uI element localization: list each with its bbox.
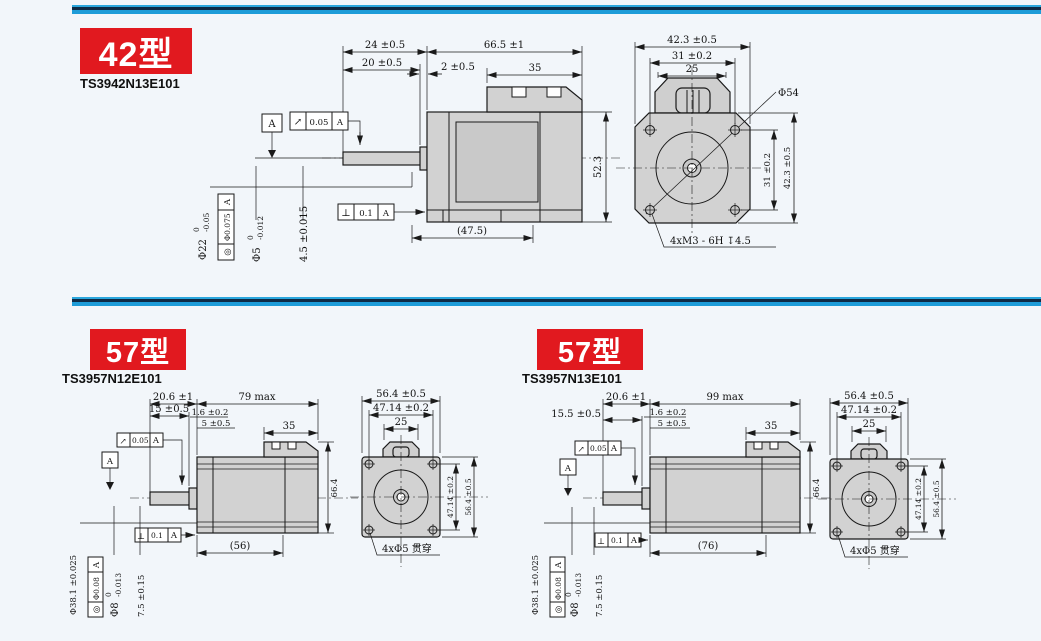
dim-pilot-length: 2 ±0.5 xyxy=(441,62,475,73)
dim-shaft-length: 15.5 ±0.5 xyxy=(551,409,601,420)
shaft-tol-lower: -0.012 xyxy=(256,216,265,240)
concentricity-datum: A xyxy=(92,561,102,569)
perpendicularity-frame: ⊥ 0.1 A xyxy=(135,528,195,542)
concentricity-symbol: ◎ xyxy=(92,606,102,613)
dim-body-length: 79 max xyxy=(239,392,276,403)
dim-flange-width: 56.4 ±0.5 xyxy=(376,389,426,400)
concentricity-frame: ◎ Φ0.08 A xyxy=(88,557,103,617)
runout-value: 0.05 xyxy=(310,118,329,128)
perp-datum-ref: A xyxy=(382,209,390,219)
shaft-tol-lower: -0.013 xyxy=(114,573,123,597)
dim-pilot-length: 5 ±0.5 xyxy=(658,419,687,429)
dim-flange-height: 56.4 ±0.5 xyxy=(932,480,941,518)
middle-divider-bar xyxy=(72,297,1041,306)
model-number-57b: TS3957N13E101 xyxy=(522,371,622,386)
concentricity-value: Φ0.075 xyxy=(223,213,232,241)
dim-hole-pitch-v: 47.14 ±0.2 xyxy=(446,476,455,518)
concentricity-datum: A xyxy=(554,561,564,569)
boss-tol-upper: 0 xyxy=(192,227,201,232)
dim-shaft-total: 20.6 ±1 xyxy=(606,392,646,403)
perpendicularity-frame: ⊥ 0.1 A xyxy=(338,204,425,220)
runout-datum-ref: A xyxy=(610,444,618,454)
dim-top-width: 25 xyxy=(863,419,876,430)
dim-body-length: 99 max xyxy=(707,392,744,403)
dim-hole-pitch: 47.14 ±0.2 xyxy=(841,405,897,416)
concentricity-symbol: ◎ xyxy=(223,248,233,255)
perp-value: 0.1 xyxy=(359,209,373,219)
dim-shaft-total: 20.6 ±1 xyxy=(153,392,193,403)
dim-shaft-length: 20 ±0.5 xyxy=(362,58,402,69)
datasheet-page: 42型 TS3942N13E101 57型 TS3957N12E101 57型 … xyxy=(0,0,1041,641)
mounting-hole-note: 4xΦ5 贯穿 xyxy=(850,544,900,557)
shaft-tolerance-callouts: Φ38.1 ±0.025 ◎ Φ0.08 A Φ8 0 -0.013 7.5 ±… xyxy=(531,507,650,617)
dim-flange-width: 56.4 ±0.5 xyxy=(844,391,894,402)
perp-symbol: ⊥ xyxy=(597,537,605,547)
dim-shaft-total: 24 ±0.5 xyxy=(365,40,405,51)
datum-label: A xyxy=(267,119,276,130)
motor-42-side-view xyxy=(322,87,620,222)
dim-height: 66.4 xyxy=(812,479,822,498)
drawing-57b: 20.6 ±1 99 max 15.5 ±0.5 1.6 ±0.2 5 ±0.5… xyxy=(530,385,1035,641)
datum-a-flag: A xyxy=(560,459,576,496)
series-badge-57a: 57型 xyxy=(90,329,186,370)
boss-diameter: Φ22 xyxy=(198,239,209,260)
dim-hole-pitch: 47.14 ±0.2 xyxy=(373,403,429,414)
boss-diameter: Φ38.1 ±0.025 xyxy=(69,555,79,615)
shaft-flat-length: 7.5 ±0.15 xyxy=(137,575,147,617)
motor-42-front-view: Φ54 xyxy=(616,66,799,234)
runout-datum-ref: A xyxy=(152,436,160,446)
dim-rear-length: 35 xyxy=(765,421,778,432)
perp-datum-ref: A xyxy=(170,531,178,541)
shaft-tol-upper: 0 xyxy=(246,235,255,240)
dim-top-width: 25 xyxy=(686,64,699,75)
dim-diagonal-diameter: Φ54 xyxy=(778,88,799,99)
boss-tol-lower: -0.05 xyxy=(202,213,211,232)
motor-57a-side-view xyxy=(130,442,358,533)
shaft-diameter: Φ8 xyxy=(110,602,121,617)
mounting-hole-note: 4xM3 - 6H ↧4.5 xyxy=(670,236,751,247)
perp-symbol: ⊥ xyxy=(137,532,145,542)
boss-diameter: Φ38.1 ±0.025 xyxy=(531,555,541,615)
drawing-57a: 20.6 ±1 79 max 15 ±0.5 1.6 ±0.2 5 ±0.5 3… xyxy=(60,385,530,641)
dim-height: 66.4 xyxy=(330,479,340,498)
dim-frame-length: (47.5) xyxy=(457,226,487,237)
concentricity-frame: ◎ Φ0.075 A xyxy=(218,194,234,260)
shaft-flat-length: 7.5 ±0.15 xyxy=(595,575,605,617)
perp-datum-ref: A xyxy=(630,536,638,546)
dim-hole-pitch-v: 31 ±0.2 xyxy=(763,153,773,187)
dim-rear-length: 35 xyxy=(283,421,296,432)
runout-symbol: ↗ xyxy=(577,445,584,455)
shaft-tolerance-callouts: Φ38.1 ±0.025 ◎ Φ0.08 A Φ8 0 -0.013 7.5 ±… xyxy=(69,506,197,617)
perp-value: 0.1 xyxy=(611,536,623,545)
dim-flange-height: 56.4 ±0.5 xyxy=(464,478,473,516)
runout-symbol: ↗ xyxy=(294,117,302,128)
shaft-diameter: Φ8 xyxy=(570,602,581,617)
runout-symbol: ↗ xyxy=(119,437,126,447)
perpendicularity-frame: ⊥ 0.1 A xyxy=(595,533,648,547)
runout-value: 0.05 xyxy=(132,436,149,445)
concentricity-value: Φ0.08 xyxy=(92,577,101,600)
shaft-tol-lower: -0.013 xyxy=(574,573,583,597)
dim-hole-pitch: 31 ±0.2 xyxy=(672,51,712,62)
dim-height: 52.3 xyxy=(593,156,604,178)
dim-pilot-length: 5 ±0.5 xyxy=(202,419,231,429)
motor-57b-side-view xyxy=(583,442,842,533)
concentricity-symbol: ◎ xyxy=(554,606,564,613)
dim-step-length: 1.6 ±0.2 xyxy=(650,408,687,418)
datum-label: A xyxy=(564,464,572,474)
shaft-diameter: Φ5 xyxy=(252,247,263,262)
concentricity-datum: A xyxy=(223,198,233,206)
concentricity-frame: ◎ Φ0.08 A xyxy=(550,557,565,617)
dim-flange-width: 42.3 ±0.5 xyxy=(667,35,717,46)
dim-shaft-length: 15 ±0.5 xyxy=(149,404,189,415)
runout-frame: ↗ 0.05 A xyxy=(117,433,182,485)
concentricity-value: Φ0.08 xyxy=(554,577,563,600)
shaft-flat-length: 4.5 ±0.015 xyxy=(299,206,310,262)
shaft-tol-upper: 0 xyxy=(564,592,573,597)
dim-frame-length: (56) xyxy=(230,541,251,552)
dim-step-length: 1.6 ±0.2 xyxy=(192,408,229,418)
mounting-hole-note: 4xΦ5 贯穿 xyxy=(382,542,432,555)
runout-frame: ↗ 0.05 A xyxy=(575,441,635,485)
dim-rear-length: 35 xyxy=(529,63,542,74)
drawing-42: 24 ±0.5 66.5 ±1 20 ±0.5 2 ±0.5 35 52.3 (… xyxy=(60,20,1040,282)
datum-label: A xyxy=(106,457,114,467)
dim-frame-length: (76) xyxy=(698,541,719,552)
dim-body-length: 66.5 ±1 xyxy=(484,40,524,51)
dim-flange-height: 42.3 ±0.5 xyxy=(783,147,793,189)
runout-value: 0.05 xyxy=(590,444,607,453)
model-number-57a: TS3957N12E101 xyxy=(62,371,162,386)
shaft-tol-upper: 0 xyxy=(104,592,113,597)
runout-frame: ↗ 0.05 A xyxy=(290,112,360,145)
datum-a-flag: A xyxy=(102,452,118,490)
series-badge-57b: 57型 xyxy=(537,329,643,370)
runout-datum-ref: A xyxy=(336,118,344,128)
top-divider-bar xyxy=(72,5,1041,14)
dim-hole-pitch-v: 47.14 ±0.2 xyxy=(914,478,923,520)
dim-top-width: 25 xyxy=(395,417,408,428)
perp-value: 0.1 xyxy=(151,531,163,540)
perp-symbol: ⊥ xyxy=(341,208,350,219)
